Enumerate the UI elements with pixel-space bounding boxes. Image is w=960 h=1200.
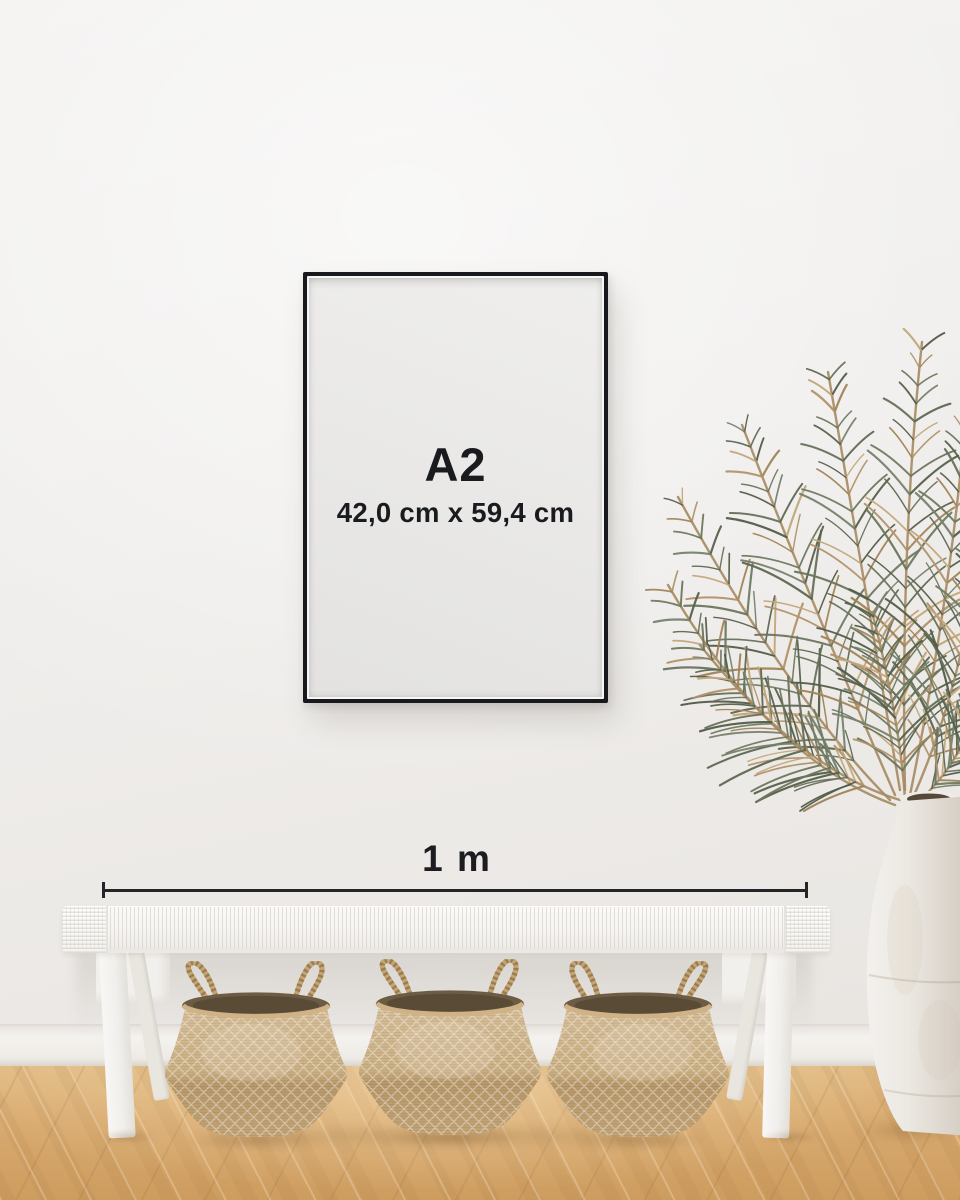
bench-leg-shadow-left	[88, 1130, 166, 1144]
poster-dimensions-label: 42,0 cm x 59,4 cm	[309, 499, 602, 527]
bench-leg-right	[762, 952, 794, 1139]
palm-plant	[600, 325, 960, 815]
woven-bench	[62, 906, 830, 953]
picture-frame: A2 42,0 cm x 59,4 cm	[303, 272, 608, 703]
scale-bar-line	[105, 889, 805, 892]
scale-bar	[102, 882, 808, 898]
poster-size-label: A2	[309, 441, 602, 488]
bench-leg-shadow-right	[752, 1130, 830, 1144]
poster-text-block: A2 42,0 cm x 59,4 cm	[309, 441, 602, 527]
scale-bar-label: 1 m	[357, 838, 557, 880]
bench-weave-end-left	[62, 906, 108, 953]
vase	[855, 780, 960, 1140]
seagrass-basket-1	[160, 961, 352, 1139]
seagrass-basket-3	[542, 961, 734, 1139]
frame-liner: A2 42,0 cm x 59,4 cm	[307, 276, 604, 699]
room-scene: A2 42,0 cm x 59,4 cm 1 m	[0, 0, 960, 1200]
seagrass-basket-2	[354, 959, 546, 1137]
bench-weave-end-right	[784, 906, 830, 953]
poster-paper: A2 42,0 cm x 59,4 cm	[309, 278, 602, 697]
